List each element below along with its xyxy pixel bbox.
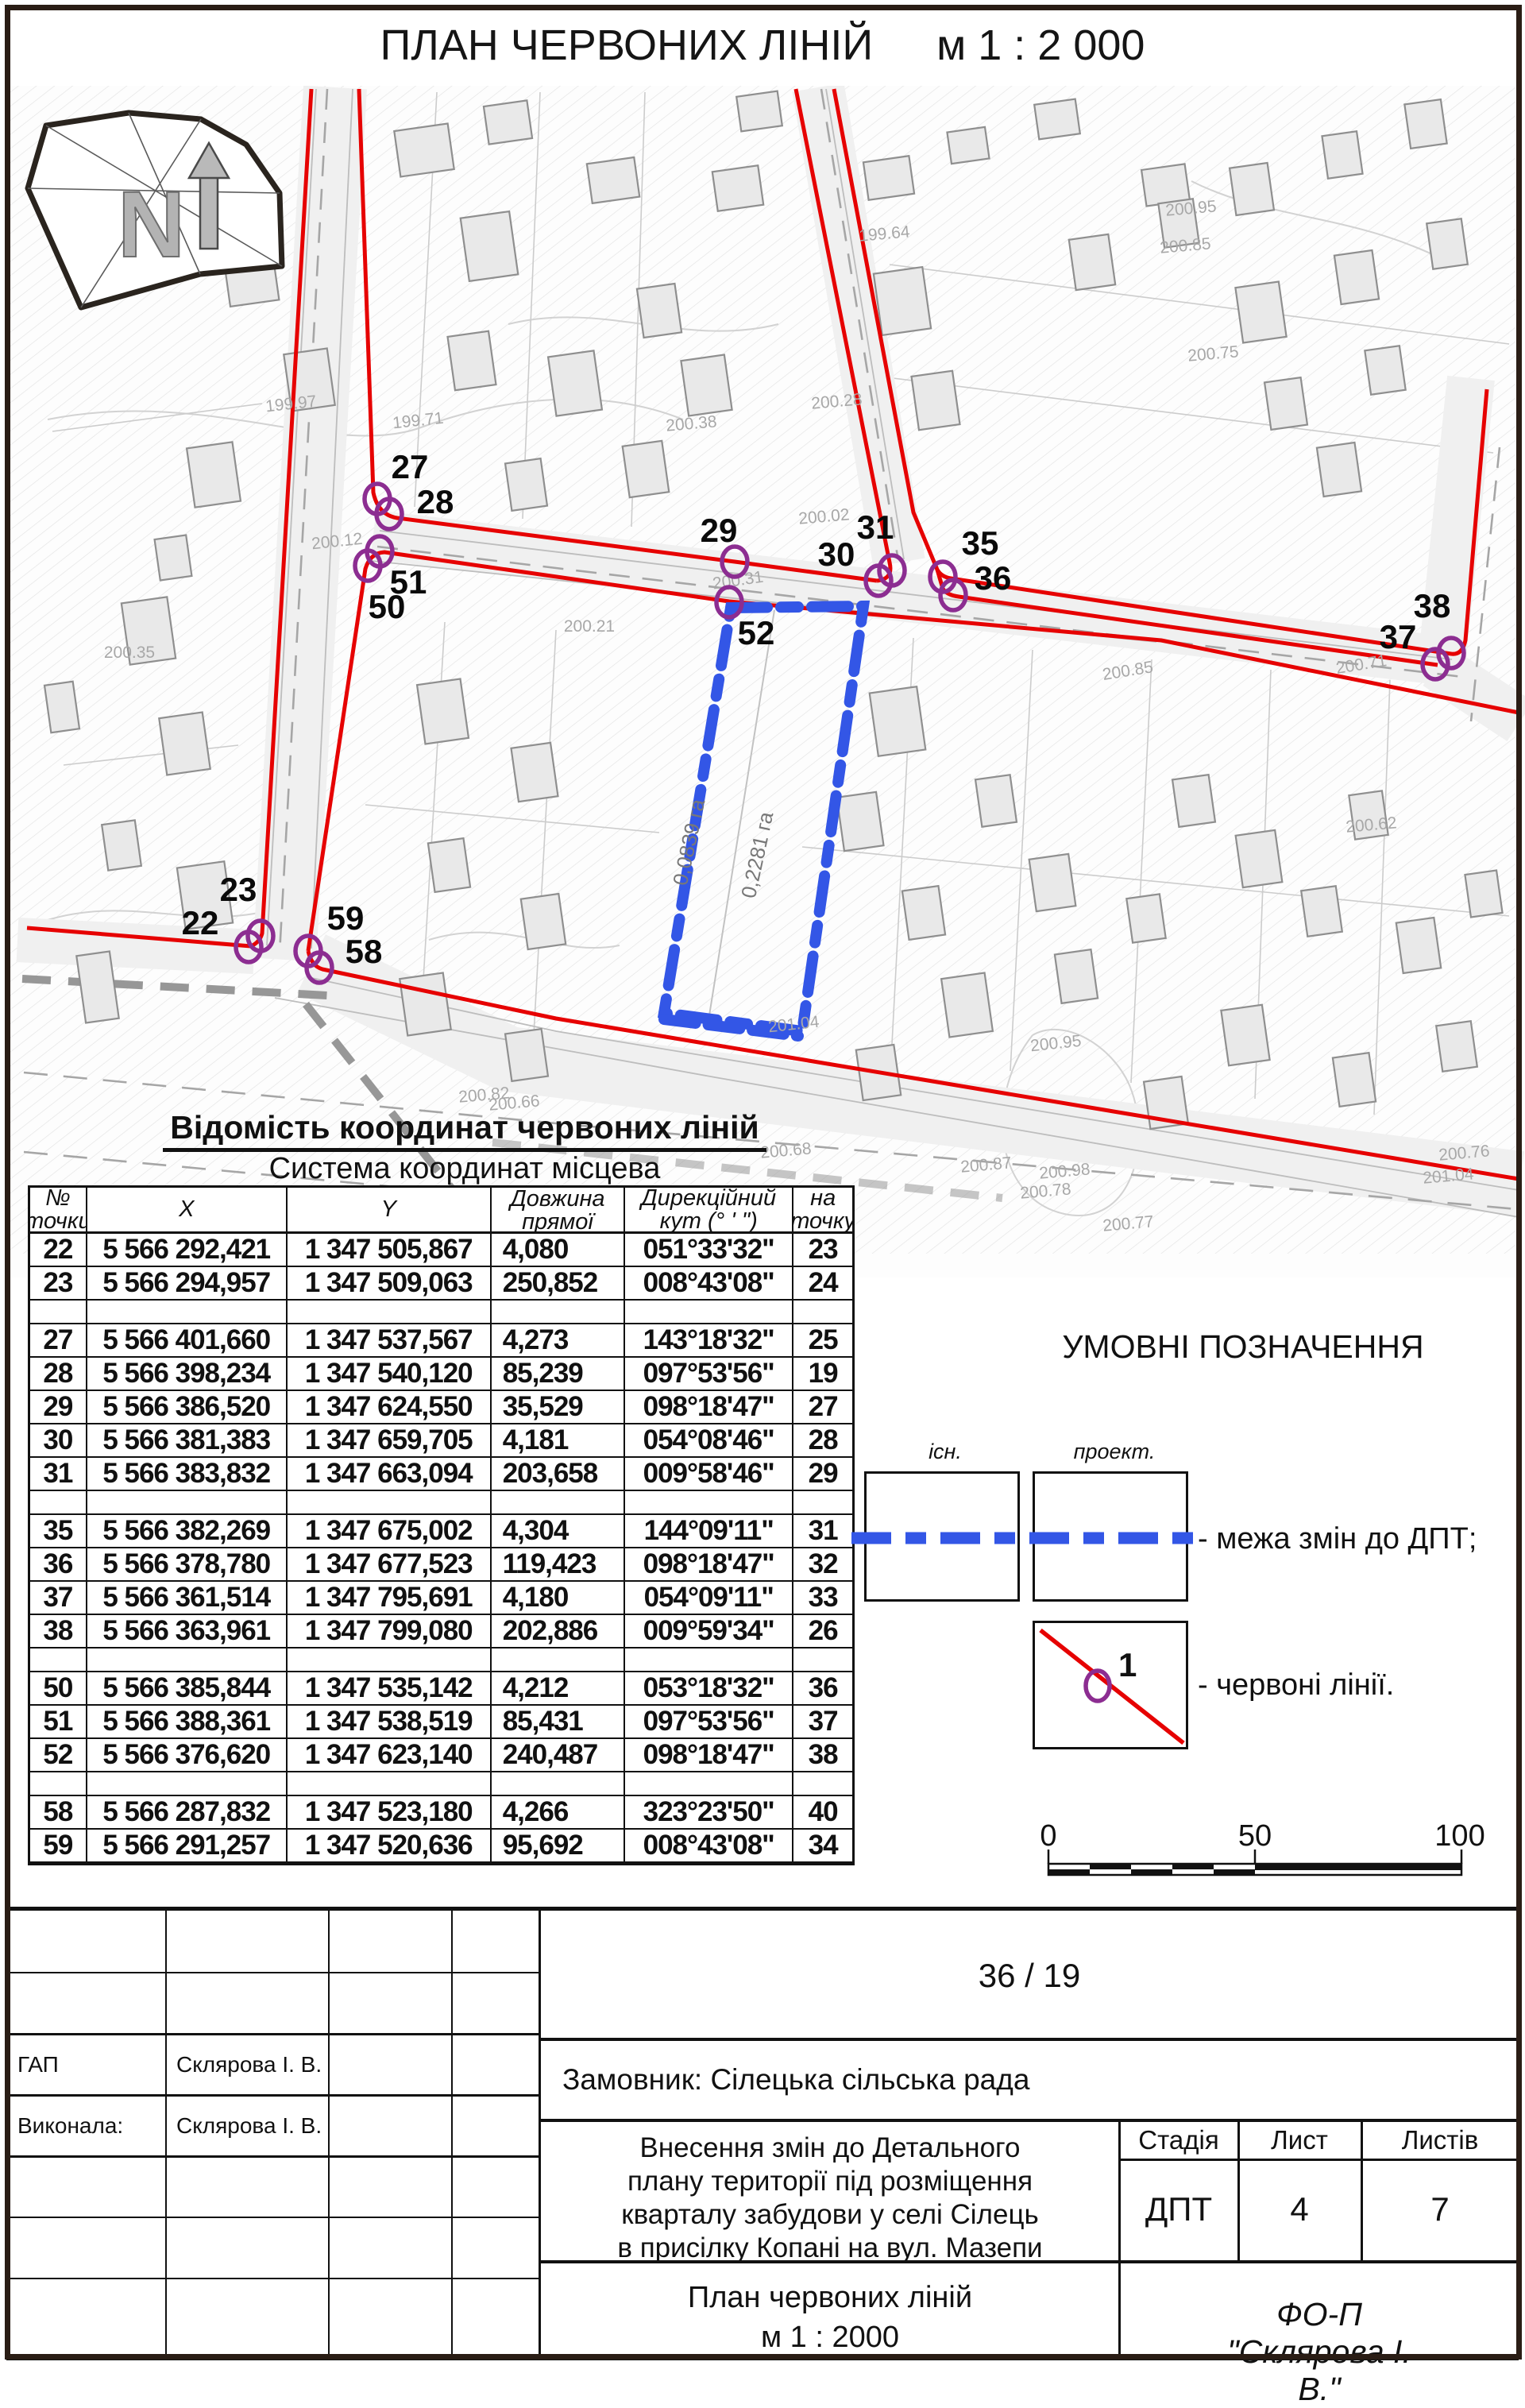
building [155,535,192,580]
building [428,838,470,892]
building [44,682,79,732]
building [736,91,782,132]
table-cell: 054°08'46" [625,1424,793,1458]
table-cell: 008°43'08" [625,1830,793,1863]
table-cell: 009°59'34" [625,1615,793,1648]
building [1034,99,1080,140]
building [1264,377,1307,430]
table-row: 275 566 401,6601 347 537,5674,273143°18'… [30,1324,852,1358]
sheets-header: Листів [1402,2125,1479,2155]
table-cell: 202,886 [492,1615,625,1648]
table-cell: 4,181 [492,1424,625,1458]
table-cell: 28 [30,1358,87,1391]
table-cell: 1 347 659,705 [288,1424,492,1458]
building [587,157,639,203]
table-cell: 5 566 385,844 [87,1672,288,1706]
table-row: 295 566 386,5201 347 624,55035,529098°18… [30,1391,852,1424]
coords-table-subtitle: Система координат місцева [163,1152,766,1186]
table-cell: 1 347 509,063 [288,1267,492,1301]
table-cell: 1 347 520,636 [288,1830,492,1863]
legend-redline-sample [1040,1630,1183,1743]
building [1396,918,1441,973]
gap-name: Склярова І. В. [176,2052,322,2078]
building [505,1029,548,1081]
table-cell: 1 347 538,519 [288,1706,492,1739]
table-cell: 1 347 540,120 [288,1358,492,1391]
table-cell: 4,273 [492,1324,625,1358]
table-cell: 4,304 [492,1515,625,1548]
table-row: 305 566 381,3831 347 659,7054,181054°08'… [30,1424,852,1458]
table-header-cell: Довжинапрямої [492,1188,625,1234]
table-cell: 240,487 [492,1739,625,1772]
building [902,886,945,940]
table-row: 385 566 363,9611 347 799,080202,886009°5… [30,1615,852,1648]
table-spacer-row [30,1491,852,1515]
table-cell: 5 566 287,832 [87,1796,288,1830]
building [1069,234,1115,290]
elevation-label: 200.35 [104,644,155,662]
table-row: 285 566 398,2341 347 540,12085,239097°53… [30,1358,852,1391]
table-cell: 4,080 [492,1234,625,1267]
table-cell: 50 [30,1672,87,1706]
table-row: 315 566 383,8321 347 663,094203,658009°5… [30,1458,852,1491]
building [874,267,931,335]
legend-point-number: 1 [1118,1646,1137,1683]
building [1235,282,1286,343]
table-cell: 5 566 291,257 [87,1830,288,1863]
building [417,679,469,744]
building [912,371,960,431]
building [623,441,670,497]
company: ФО-П "Склярова І. В." [1220,2296,1419,2408]
svg-text:N: N [118,172,185,277]
plan-title: ПЛАН ЧЕРВОНИХ ЛІНІЙ [380,21,874,70]
building [941,973,993,1038]
coords-table-title: Відомість координат червоних ліній [163,1109,766,1152]
building [1404,99,1446,149]
building [1333,1053,1376,1107]
building [394,124,454,177]
stage-header: Стадія [1138,2125,1218,2155]
table-cell: 1 347 535,142 [288,1672,492,1706]
project-title: Внесення змін до Детальногоплану територ… [512,2132,1148,2265]
table-cell: 098°18'47" [625,1548,793,1582]
building [1427,218,1468,269]
building [1365,346,1405,395]
table-cell: 053°18'32" [625,1672,793,1706]
table-cell: 054°09'11" [625,1582,793,1615]
table-cell: 4,266 [492,1796,625,1830]
building [863,156,914,200]
building [187,442,241,507]
table-cell: 250,852 [492,1267,625,1301]
building [712,165,763,211]
table-cell: 5 566 294,957 [87,1267,288,1301]
table-cell: 323°23'50" [625,1796,793,1830]
building [1055,949,1098,1003]
table-cell: 097°53'56" [625,1706,793,1739]
table-cell: 1 347 537,567 [288,1324,492,1358]
table-row: 355 566 382,2691 347 675,0024,304144°09'… [30,1515,852,1548]
building [448,331,496,391]
table-cell: 40 [793,1796,852,1830]
table-cell: 4,212 [492,1672,625,1706]
table-cell: 098°18'47" [625,1391,793,1424]
scale-bar [1033,1848,1477,1884]
gap-label: ГАП [17,2052,59,2078]
table-cell: 5 566 292,421 [87,1234,288,1267]
building [1322,131,1362,179]
sheet-value: 4 [1290,2190,1308,2228]
building [159,713,210,775]
table-row: 365 566 378,7801 347 677,523119,423098°1… [30,1548,852,1582]
table-cell: 008°43'08" [625,1267,793,1301]
table-cell: 34 [793,1830,852,1863]
table-cell: 009°58'46" [625,1458,793,1491]
table-cell: 5 566 401,660 [87,1324,288,1358]
table-cell: 51 [30,1706,87,1739]
stage-value: ДПТ [1145,2190,1212,2228]
table-header-cell: X [87,1188,288,1234]
table-cell: 1 347 523,180 [288,1796,492,1830]
table-cell: 1 347 795,691 [288,1582,492,1615]
building [521,894,566,949]
table-cell: 36 [30,1548,87,1582]
table-row: 525 566 376,6201 347 623,140240,487098°1… [30,1739,852,1772]
building [505,458,547,511]
building [461,211,519,281]
table-cell: 23 [30,1267,87,1301]
point-label-58: 58 [346,933,383,970]
building [548,350,602,416]
table-cell: 23 [793,1234,852,1267]
coordinates-table: №точкиXYДовжинапрямоїДирекційнийкут (° '… [28,1185,855,1865]
point-label-38: 38 [1414,587,1451,624]
building [681,355,732,416]
table-cell: 1 347 663,094 [288,1458,492,1491]
point-label-27: 27 [392,448,429,485]
building [1465,870,1502,917]
table-cell: 1 347 505,867 [288,1234,492,1267]
point-label-52: 52 [738,614,775,651]
point-label-30: 30 [818,535,855,573]
building [1221,1005,1269,1066]
table-cell: 5 566 383,832 [87,1458,288,1491]
page-title: ПЛАН ЧЕРВОНИХ ЛІНІЙ м 1 : 2 000 [0,21,1525,70]
table-row: 235 566 294,9571 347 509,063250,852008°4… [30,1267,852,1301]
table-header-cell: Y [288,1188,492,1234]
table-cell: 30 [30,1424,87,1458]
table-spacer-row [30,1648,852,1672]
building [1029,854,1076,911]
point-label-28: 28 [417,483,454,520]
table-spacer-row [30,1772,852,1796]
point-label-36: 36 [975,559,1012,597]
building [1230,163,1274,215]
table-row: 515 566 388,3611 347 538,51985,431097°53… [30,1706,852,1739]
table-cell: 31 [30,1458,87,1491]
table-cell: 144°09'11" [625,1515,793,1548]
table-cell: 5 566 361,514 [87,1582,288,1615]
table-cell: 5 566 381,383 [87,1424,288,1458]
table-cell: 051°33'32" [625,1234,793,1267]
table-row: 375 566 361,5141 347 795,6914,180054°09'… [30,1582,852,1615]
table-header-cell: Дирекційнийкут (° ' ") [625,1188,793,1234]
point-label-31: 31 [857,508,894,546]
table-row: 505 566 385,8441 347 535,1424,212053°18'… [30,1672,852,1706]
table-cell: 1 347 675,002 [288,1515,492,1548]
table-spacer-row [30,1301,852,1324]
sheets-value: 7 [1430,2190,1449,2228]
building [870,686,926,756]
building [975,775,1017,827]
table-cell: 1 347 799,080 [288,1615,492,1648]
table-cell: 35,529 [492,1391,625,1424]
building [1436,1021,1477,1072]
table-cell: 5 566 386,520 [87,1391,288,1424]
building [102,820,141,870]
table-cell: 24 [793,1267,852,1301]
table-cell: 5 566 382,269 [87,1515,288,1548]
building [1334,250,1379,304]
table-header-cell: наточку [793,1188,852,1234]
table-cell: 85,239 [492,1358,625,1391]
table-cell: 1 347 623,140 [288,1739,492,1772]
building [1317,443,1361,497]
point-label-35: 35 [962,524,999,562]
table-cell: 143°18'32" [625,1324,793,1358]
executor-name: Склярова І. В. [176,2113,322,2139]
elevation-label: 200.21 [564,617,615,636]
table-cell: 119,423 [492,1548,625,1582]
table-cell: 27 [30,1324,87,1358]
table-cell: 098°18'47" [625,1739,793,1772]
building [1126,894,1165,942]
point-label-37: 37 [1380,618,1417,655]
plan-scale: м 1 : 2 000 [936,21,1145,70]
table-row: 595 566 291,2571 347 520,63695,692008°43… [30,1830,852,1863]
table-header-row: №точкиXYДовжинапрямоїДирекційнийкут (° '… [30,1188,852,1234]
table-cell: 52 [30,1739,87,1772]
building [1236,830,1283,887]
executor-label: Виконала: [17,2113,123,2139]
table-cell: 203,658 [492,1458,625,1491]
table-cell: 4,180 [492,1582,625,1615]
table-cell: 5 566 363,961 [87,1615,288,1648]
sheet-title: План червоних лінійм 1 : 2000 [552,2278,1108,2357]
building [512,743,558,802]
table-cell: 22 [30,1234,87,1267]
building [1172,775,1215,827]
table-row: 225 566 292,4211 347 505,8674,080051°33'… [30,1234,852,1267]
point-label-29: 29 [701,512,738,549]
building [400,973,450,1036]
building [484,100,532,144]
customer: Замовник: Сілецька сільська рада [562,2063,1029,2097]
table-cell: 58 [30,1796,87,1830]
title-block: ГАП Склярова І. В. Виконала: Склярова І.… [6,1907,1519,2356]
building [837,792,884,851]
table-header-cell: №точки [30,1188,87,1234]
table-row: 585 566 287,8321 347 523,1804,266323°23'… [30,1796,852,1830]
sheet-header: Лист [1271,2125,1328,2155]
point-label-51: 51 [390,563,427,601]
table-cell: 5 566 398,234 [87,1358,288,1391]
table-cell: 38 [30,1615,87,1648]
building [947,127,989,164]
table-cell: 5 566 388,361 [87,1706,288,1739]
point-label-22: 22 [182,904,219,941]
building [1301,886,1342,937]
table-cell: 5 566 376,620 [87,1739,288,1772]
table-cell: 29 [30,1391,87,1424]
building [637,284,681,338]
point-label-23: 23 [220,871,257,908]
table-cell: 1 347 624,550 [288,1391,492,1424]
table-cell: 097°53'56" [625,1358,793,1391]
point-label-59: 59 [327,899,365,937]
table-cell: 37 [30,1582,87,1615]
table-cell: 1 347 677,523 [288,1548,492,1582]
table-cell: 95,692 [492,1830,625,1863]
table-cell: 85,431 [492,1706,625,1739]
doc-number: 36 / 19 [979,1957,1080,1995]
table-cell: 5 566 378,780 [87,1548,288,1582]
table-cell: 59 [30,1830,87,1863]
table-cell: 35 [30,1515,87,1548]
